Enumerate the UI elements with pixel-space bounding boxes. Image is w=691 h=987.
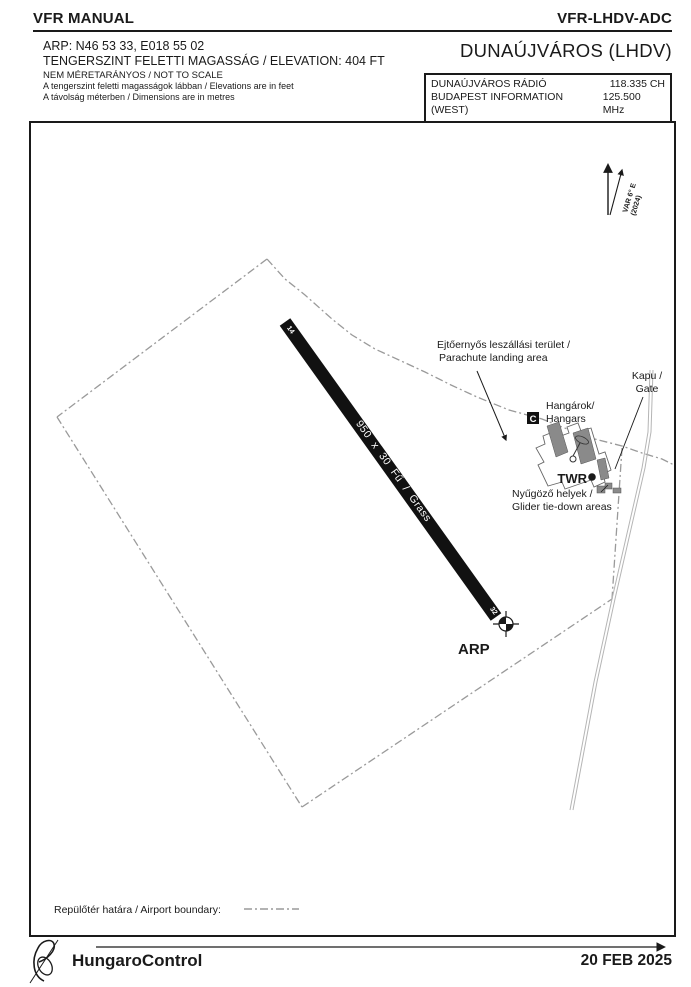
radio-row: BUDAPEST INFORMATION (WEST) 125.500 MHz xyxy=(431,91,665,117)
arp-coordinates: ARP: N46 53 33, E018 55 02 xyxy=(43,39,204,53)
gate-label-en: Gate xyxy=(636,383,659,395)
arp-label: ARP xyxy=(458,641,490,658)
boundary-legend-label: Repülőtér határa / Airport boundary: xyxy=(54,904,221,916)
gate-leader-line xyxy=(615,397,643,469)
elevations-note: A tengerszint feletti magasságok lábban … xyxy=(43,81,294,91)
elevation-line: TENGERSZINT FELETTI MAGASSÁG / ELEVATION… xyxy=(43,54,385,68)
runway-dimensions-label: 950 x 30 Fű / Grass xyxy=(353,418,434,524)
radio-frequency: 125.500 MHz xyxy=(603,91,665,117)
chart-code: VFR-LHDV-ADC xyxy=(557,10,672,27)
tower-dot-icon xyxy=(588,473,596,481)
airport-title: DUNAÚJVÁROS (LHDV) xyxy=(460,40,672,62)
radio-row: DUNAÚJVÁROS RÁDIÓ 118.335 CH xyxy=(431,78,665,91)
effective-date: 20 FEB 2025 xyxy=(581,952,672,970)
hangars-label-hu: Hangárok/ xyxy=(546,400,595,412)
parachute-area-label-en: Parachute landing area xyxy=(439,352,548,364)
signal-square-icon: C xyxy=(527,412,539,425)
publisher-name: HungaroControl xyxy=(72,951,202,971)
radio-station: DUNAÚJVÁROS RÁDIÓ xyxy=(431,78,547,91)
hungarocontrol-logo-icon xyxy=(30,940,58,983)
radio-station: BUDAPEST INFORMATION (WEST) xyxy=(431,91,603,117)
radio-frequency: 118.335 CH xyxy=(610,78,665,91)
hangars-label-en: Hangars xyxy=(546,413,586,425)
tower-label: TWR xyxy=(557,471,587,486)
header-rule xyxy=(33,30,672,32)
glider-tiedown-label-hu: Nyűgöző helyek / xyxy=(512,488,593,500)
signal-square-letter: C xyxy=(530,414,537,425)
aerodrome-chart: 14 32 950 x 30 Fű / Grass ARP C TWR Ejtő… xyxy=(31,123,674,935)
not-to-scale-note: NEM MÉRETARÁNYOS / NOT TO SCALE xyxy=(43,70,223,81)
dimensions-note: A távolság méterben / Dimensions are in … xyxy=(43,92,235,102)
radio-frequency-box: DUNAÚJVÁROS RÁDIÓ 118.335 CH BUDAPEST IN… xyxy=(424,73,672,123)
aerodrome-chart-frame: 14 32 950 x 30 Fű / Grass ARP C TWR Ejtő… xyxy=(29,121,676,937)
parachute-area-leader-arrow xyxy=(477,371,506,440)
gate-label-hu: Kapu / xyxy=(632,370,662,382)
glider-tiedown-label-en: Glider tie-down areas xyxy=(512,501,612,513)
parachute-area-label-hu: Ejtőernyős leszállási terület / xyxy=(437,339,570,351)
airport-boundary-line xyxy=(57,259,674,807)
manual-title: VFR MANUAL xyxy=(33,10,134,27)
vfr-chart-page: { "header": { "manual_title": "VFR MANUA… xyxy=(0,0,691,987)
